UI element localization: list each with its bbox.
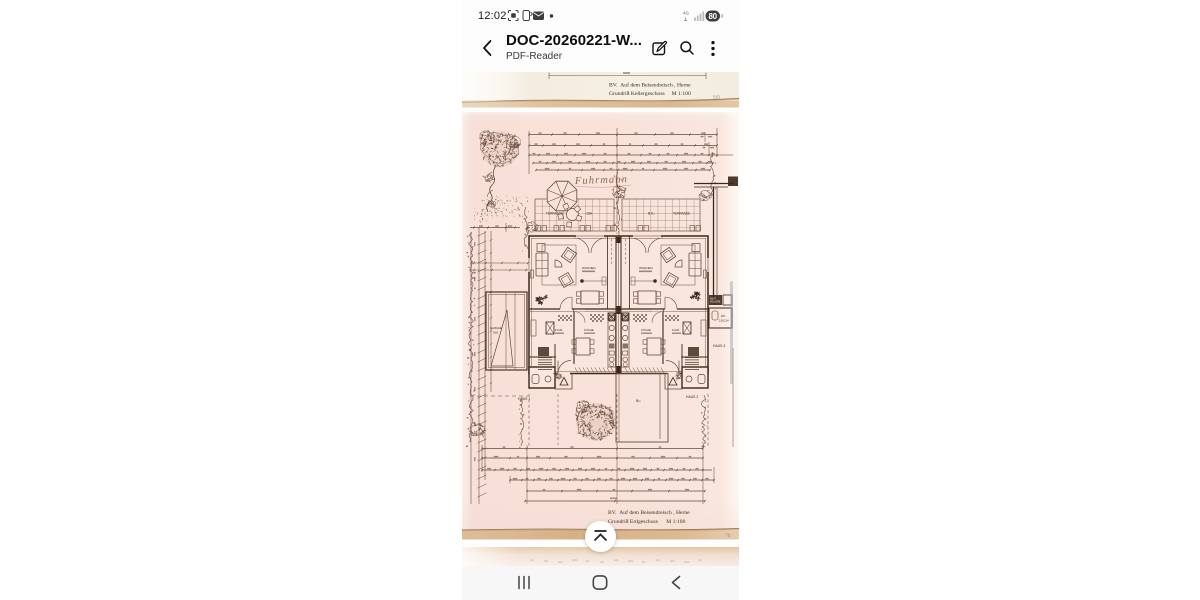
svg-text:TERRASSE: TERRASSE [673, 212, 690, 216]
svg-text:GARAGE: GARAGE [490, 326, 502, 330]
svg-text:7b: 7b [725, 533, 731, 539]
svg-text:BV. Auf dem Beisendreisch , H: BV. Auf dem Beisendreisch , Herne [609, 82, 691, 89]
svg-text:Grundriß Erdgeschoss M 1:: Grundriß Erdgeschoss M 1:100 [608, 518, 686, 525]
svg-text:5/9: 5/9 [713, 95, 720, 101]
svg-text:FLUR: FLUR [555, 328, 562, 332]
svg-text:80: 80 [709, 12, 718, 21]
svg-text:WOHNEN: WOHNEN [582, 266, 596, 270]
svg-text:Fuhrmann: Fuhrmann [574, 174, 628, 187]
svg-text:Grundriß Kellergeschoss M: Grundriß Kellergeschoss M 1:100 [609, 90, 691, 97]
svg-text:◁SA: ◁SA [585, 212, 593, 216]
svg-text:HAUS 2: HAUS 2 [686, 395, 698, 399]
svg-text:B▷: B▷ [636, 399, 641, 403]
svg-text:WC: WC [721, 314, 725, 318]
svg-text:WOHNEN: WOHNEN [639, 266, 653, 270]
svg-text:HAUS 3: HAUS 3 [713, 344, 725, 348]
svg-text:9,81: 9,81 [493, 331, 499, 335]
svg-text:KÜCHE: KÜCHE [641, 328, 651, 332]
svg-text:FLUR: FLUR [672, 328, 679, 332]
svg-text:BV. Auf dem Beisendreisch , H: BV. Auf dem Beisendreisch , Herne [608, 509, 690, 516]
svg-text:KELLERB.: KELLERB. [710, 302, 721, 304]
svg-text:KÜCHE: KÜCHE [584, 328, 594, 332]
svg-text:4G: 4G [683, 11, 690, 16]
svg-text:2,61/2,04: 2,61/2,04 [719, 321, 729, 323]
svg-text:B I▷: B I▷ [648, 212, 655, 216]
svg-text:ABST: ABST [710, 298, 717, 301]
